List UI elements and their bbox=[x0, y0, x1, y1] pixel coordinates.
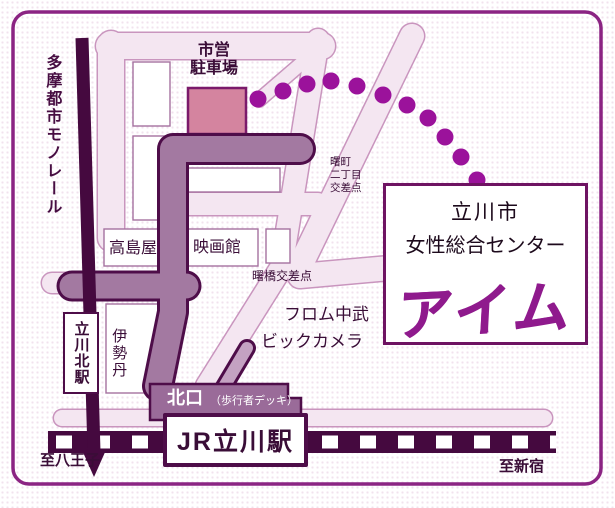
jr-tachikawa-station-label: JR立川駅 bbox=[177, 422, 294, 458]
destination-center-label: 女性総合センター bbox=[386, 229, 585, 258]
destination-city-label: 立川市 bbox=[386, 196, 585, 226]
parking-label-line1: 市営 bbox=[180, 42, 248, 60]
takashimaya-label: 高島屋 bbox=[109, 240, 157, 258]
pedestrian-deck-label: （歩行者デッキ） bbox=[210, 395, 298, 408]
to-shinjuku-label: 至新宿 bbox=[499, 458, 544, 475]
tachikawa-kita-station-label: 立川北駅 bbox=[71, 321, 92, 385]
bic-camera-label: ビックカメラ bbox=[261, 332, 363, 352]
north-exit-label: 北口 bbox=[167, 388, 203, 409]
akebonocho-crossing-label: 曙町 二丁目 交差点 bbox=[330, 156, 362, 195]
parking-label: 市営 駐車場 bbox=[180, 42, 248, 79]
jr-tachikawa-station-box: JR立川駅 bbox=[163, 413, 308, 467]
from-nakamu-label: フロム中武 bbox=[284, 305, 369, 325]
akebonobashi-crossing-label: 曙橋交差点 bbox=[252, 270, 312, 284]
tachikawa-kita-station-box: 立川北駅 bbox=[63, 312, 99, 394]
parking-area bbox=[188, 88, 246, 134]
isetan-label: 伊勢丹 bbox=[110, 328, 127, 379]
destination-box: 立川市 女性総合センター アイム bbox=[383, 183, 588, 345]
aim-logo: アイム bbox=[395, 261, 575, 352]
cinema-label: 映画館 bbox=[193, 239, 241, 257]
tachikawa-access-map: 多摩都市モノレール 市営 駐車場 高島屋 映画館 伊勢丹 曙町 二丁目 交差点 … bbox=[0, 0, 615, 508]
parking-label-line2: 駐車場 bbox=[180, 60, 248, 78]
to-hachioji-label: 至八王子 bbox=[40, 452, 100, 469]
monorail-label: 多摩都市モノレール bbox=[42, 54, 60, 216]
